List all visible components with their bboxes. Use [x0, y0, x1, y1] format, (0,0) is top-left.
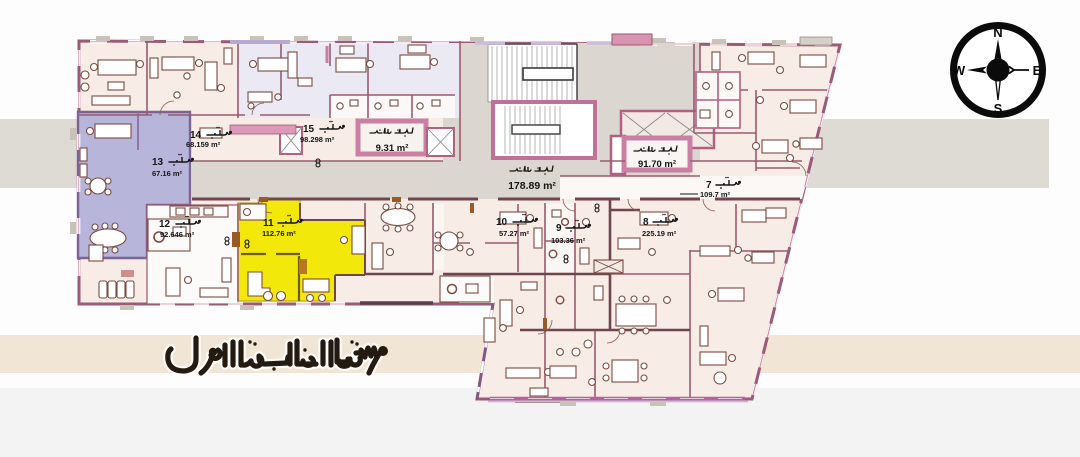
svg-text:N: N: [993, 25, 1002, 40]
svg-text:9: 9: [556, 223, 562, 234]
svg-text:103.36 m²: 103.36 m²: [551, 236, 586, 245]
svg-text:13: 13: [152, 157, 164, 168]
svg-text:98.298 m²: 98.298 m²: [300, 135, 335, 144]
svg-text:91.70 m²: 91.70 m²: [638, 159, 676, 170]
svg-text:11: 11: [263, 218, 274, 229]
svg-text:10: 10: [496, 217, 508, 228]
svg-text:W: W: [953, 63, 966, 78]
svg-text:9.31 m²: 9.31 m²: [376, 143, 409, 154]
svg-text:92.646 m²: 92.646 m²: [160, 230, 195, 239]
svg-text:68.159 m²: 68.159 m²: [186, 140, 221, 149]
svg-text:S: S: [994, 101, 1003, 116]
svg-text:112.76 m²: 112.76 m²: [262, 229, 296, 238]
svg-text:12: 12: [159, 219, 171, 230]
svg-text:15: 15: [303, 124, 315, 135]
svg-text:109.7 m²: 109.7 m²: [700, 190, 731, 199]
svg-text:178.89 m²: 178.89 m²: [508, 180, 556, 192]
svg-text:8: 8: [643, 217, 649, 228]
svg-text:57.27 m²: 57.27 m²: [499, 229, 530, 238]
svg-text:225.19 m²: 225.19 m²: [642, 229, 677, 238]
svg-text:67.16 m²: 67.16 m²: [152, 169, 183, 178]
svg-text:E: E: [1033, 63, 1042, 78]
